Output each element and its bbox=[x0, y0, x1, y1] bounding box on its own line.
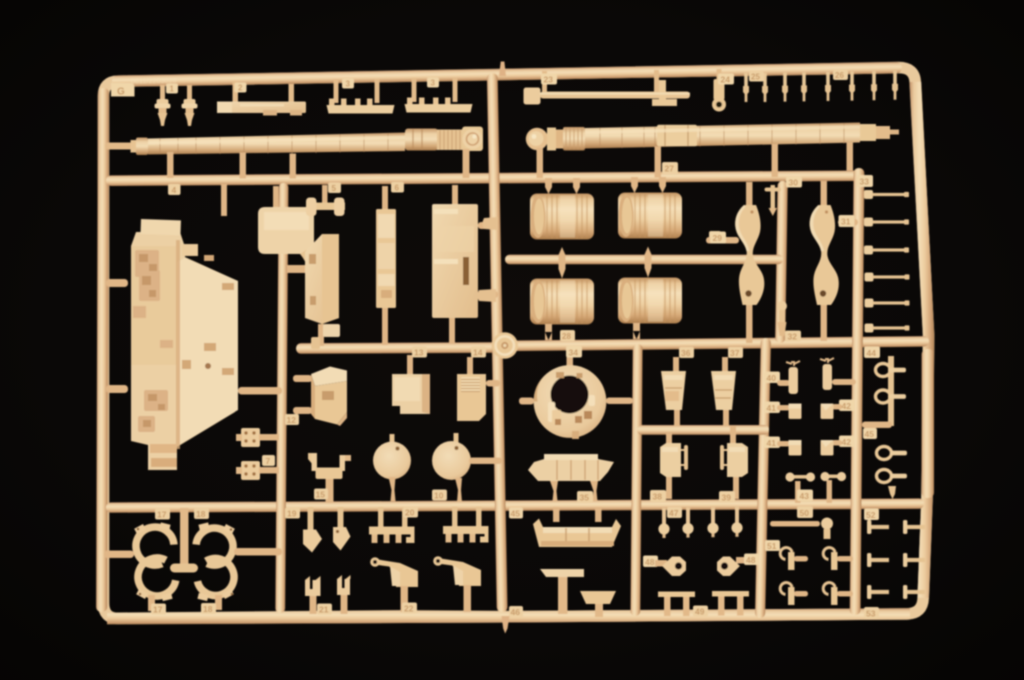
svg-text:6: 6 bbox=[395, 184, 400, 193]
svg-text:53: 53 bbox=[866, 609, 876, 619]
svg-text:38: 38 bbox=[653, 492, 663, 502]
svg-text:51: 51 bbox=[767, 541, 777, 551]
svg-text:24: 24 bbox=[721, 75, 731, 85]
svg-text:34: 34 bbox=[569, 348, 579, 358]
svg-text:17: 17 bbox=[153, 605, 163, 615]
svg-text:27: 27 bbox=[665, 164, 675, 174]
svg-text:18: 18 bbox=[196, 509, 206, 519]
svg-text:30: 30 bbox=[789, 178, 799, 188]
svg-text:43: 43 bbox=[800, 491, 810, 501]
svg-text:18: 18 bbox=[203, 604, 213, 614]
svg-text:36: 36 bbox=[681, 348, 691, 358]
svg-text:22: 22 bbox=[404, 604, 414, 614]
svg-text:52: 52 bbox=[866, 510, 876, 520]
svg-text:7: 7 bbox=[266, 456, 271, 466]
svg-text:42: 42 bbox=[842, 437, 852, 447]
svg-text:48: 48 bbox=[746, 555, 756, 565]
svg-text:2: 2 bbox=[238, 84, 243, 93]
svg-text:5: 5 bbox=[332, 184, 337, 193]
svg-text:29: 29 bbox=[713, 233, 723, 243]
svg-text:50: 50 bbox=[800, 508, 810, 518]
svg-text:49: 49 bbox=[695, 607, 705, 617]
svg-text:33: 33 bbox=[860, 177, 870, 187]
svg-text:14: 14 bbox=[473, 348, 483, 358]
svg-text:39: 39 bbox=[722, 493, 732, 503]
svg-text:35: 35 bbox=[580, 493, 590, 503]
svg-text:13: 13 bbox=[414, 348, 424, 358]
svg-text:32: 32 bbox=[788, 332, 798, 342]
svg-text:26: 26 bbox=[835, 71, 844, 80]
svg-text:15: 15 bbox=[316, 490, 326, 500]
svg-text:45: 45 bbox=[511, 509, 521, 519]
svg-text:25: 25 bbox=[751, 73, 760, 82]
svg-text:44: 44 bbox=[867, 348, 877, 358]
svg-text:42: 42 bbox=[842, 401, 852, 411]
svg-text:3: 3 bbox=[431, 79, 436, 88]
svg-text:17: 17 bbox=[157, 510, 167, 520]
svg-text:1: 1 bbox=[170, 85, 175, 94]
svg-text:47: 47 bbox=[669, 508, 679, 518]
svg-text:40: 40 bbox=[767, 373, 777, 383]
svg-text:41: 41 bbox=[767, 438, 777, 448]
svg-text:45: 45 bbox=[865, 429, 875, 439]
svg-text:28: 28 bbox=[562, 332, 571, 341]
svg-text:4: 4 bbox=[172, 185, 177, 195]
svg-text:46: 46 bbox=[511, 607, 521, 617]
svg-text:48: 48 bbox=[645, 557, 655, 567]
svg-text:37: 37 bbox=[730, 348, 740, 358]
svg-text:G: G bbox=[117, 87, 125, 98]
svg-text:21: 21 bbox=[319, 605, 329, 615]
svg-text:23: 23 bbox=[544, 75, 554, 85]
svg-text:20: 20 bbox=[405, 508, 415, 518]
svg-text:19: 19 bbox=[287, 509, 297, 519]
svg-text:10: 10 bbox=[434, 491, 444, 501]
svg-text:31: 31 bbox=[841, 217, 851, 227]
svg-text:41: 41 bbox=[767, 403, 777, 413]
svg-text:3: 3 bbox=[346, 80, 351, 89]
svg-text:12: 12 bbox=[287, 415, 297, 425]
